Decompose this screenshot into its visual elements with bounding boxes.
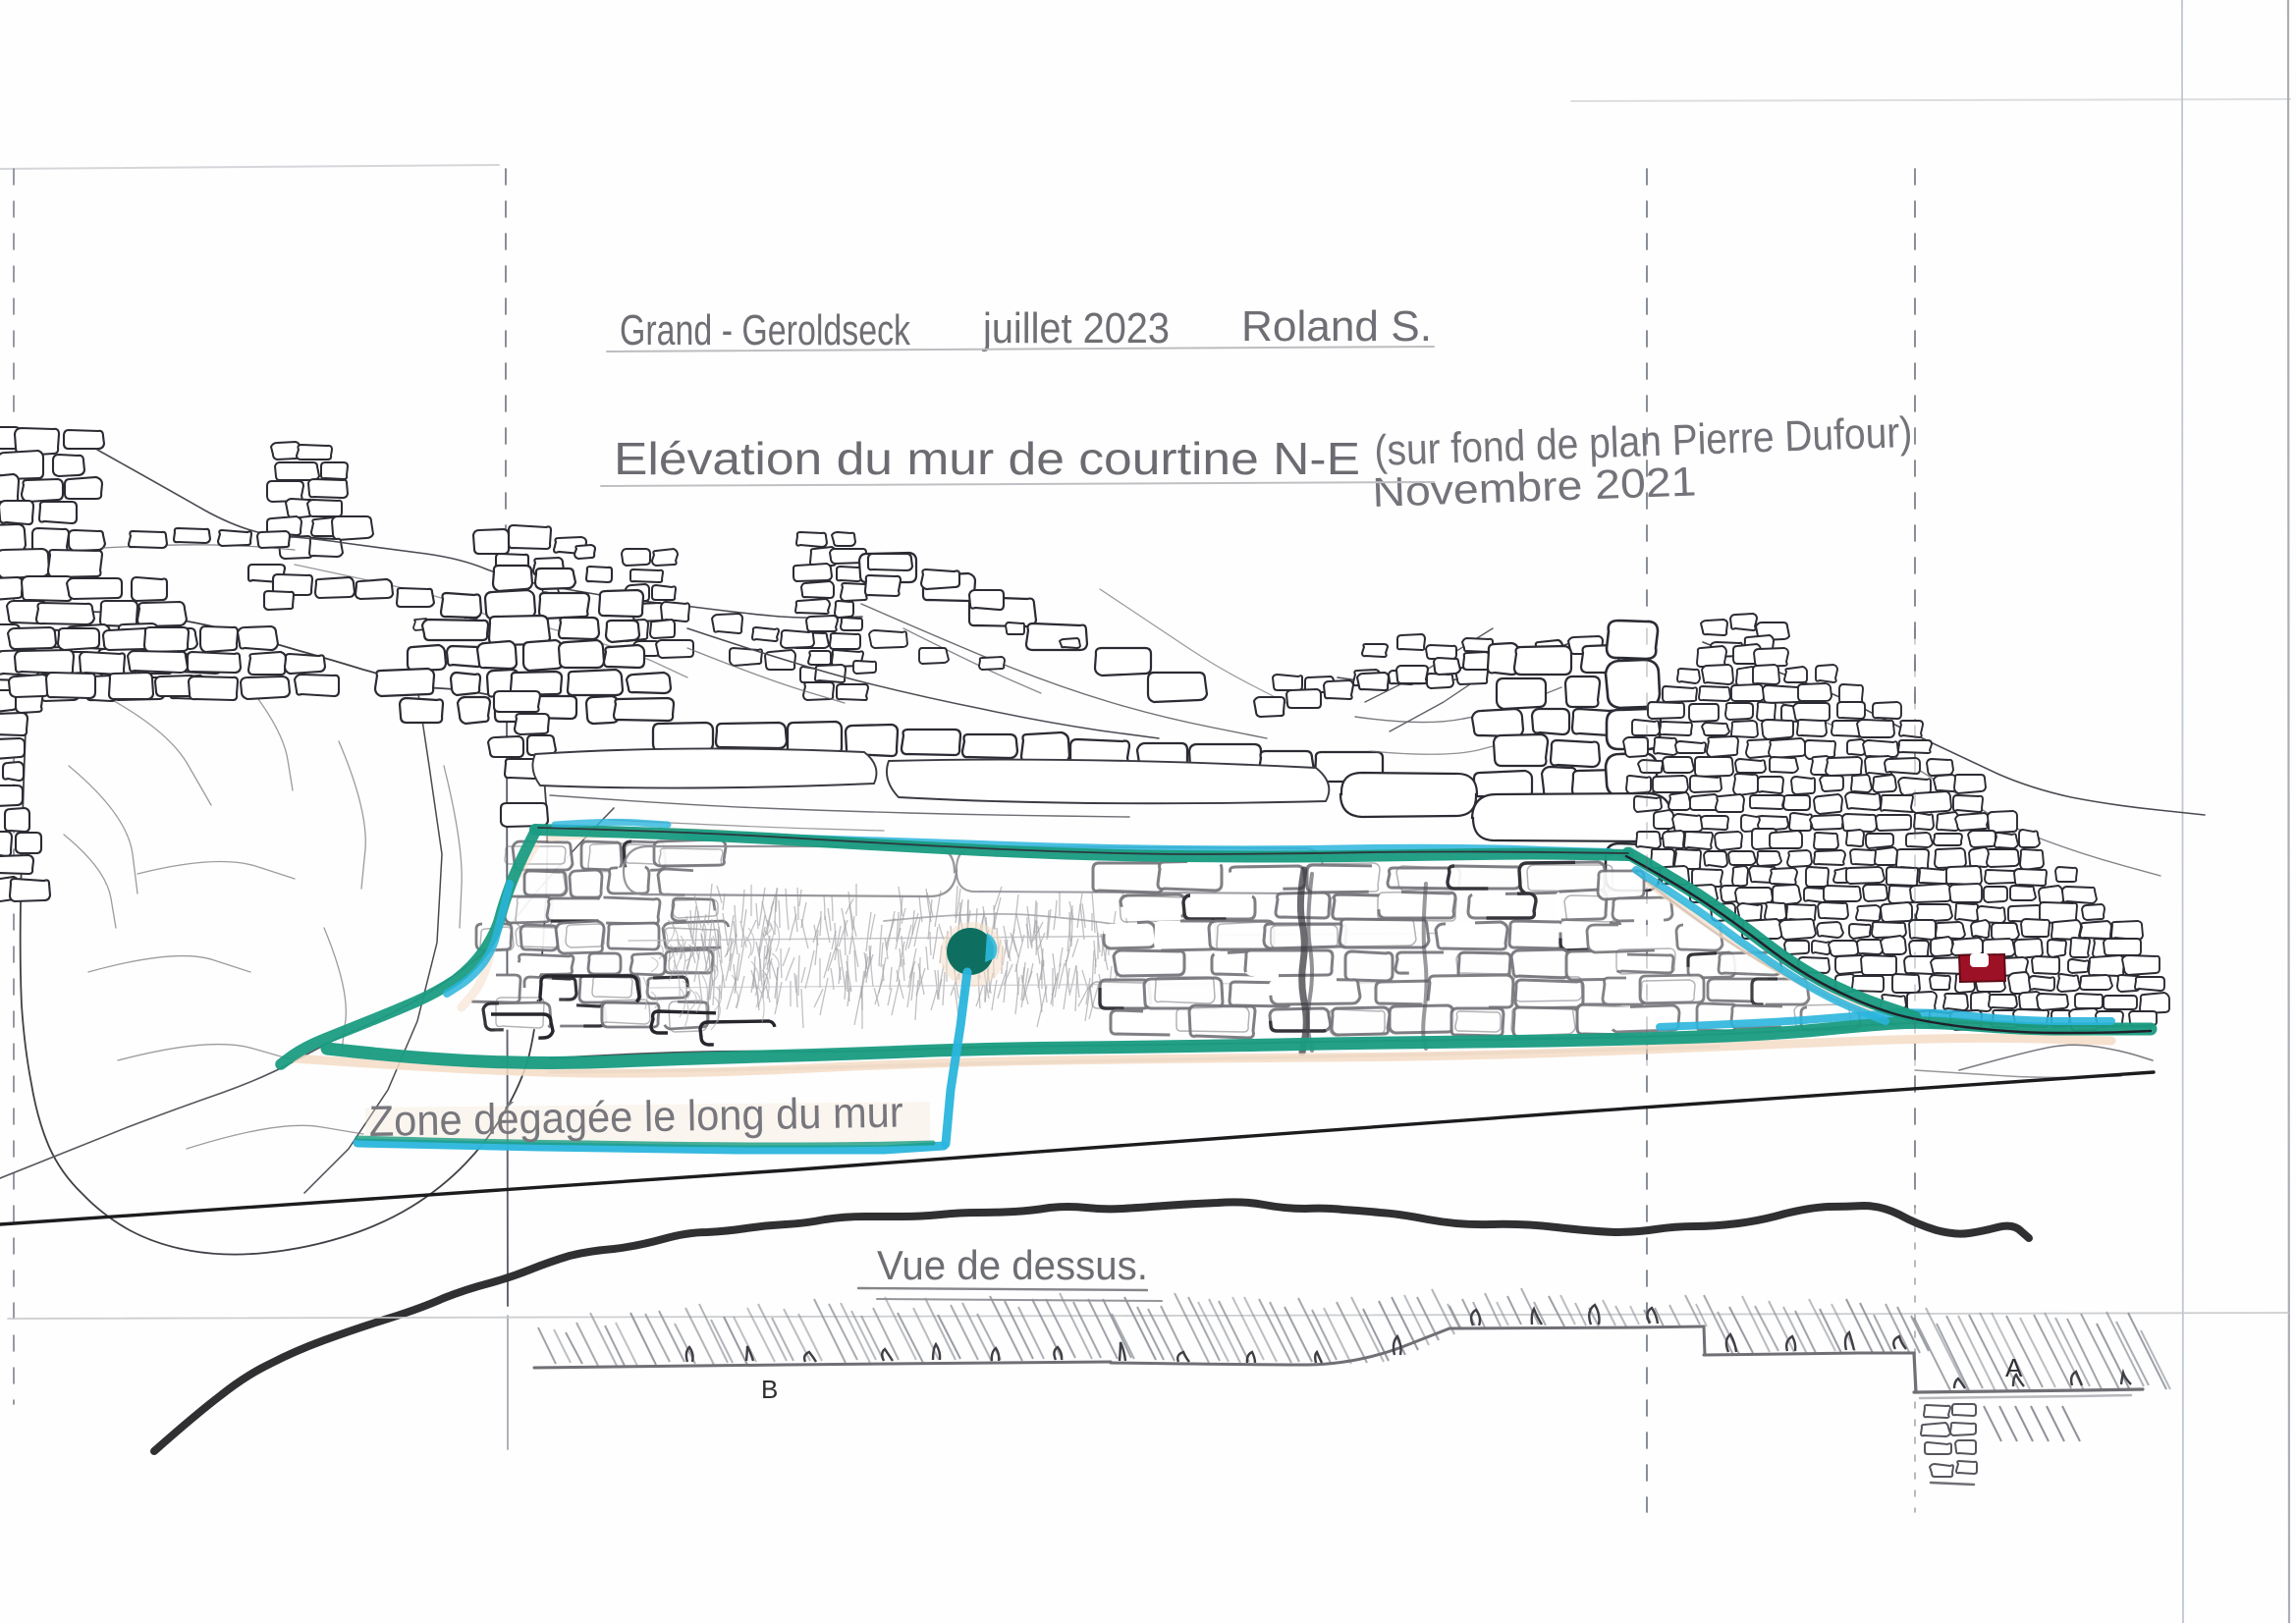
svg-text:Zone dégagée le long du mur: Zone dégagée le long du mur	[368, 1089, 903, 1146]
svg-text:A: A	[2005, 1353, 2023, 1382]
svg-text:Vue de dessus.: Vue de dessus.	[877, 1242, 1148, 1288]
svg-text:juillet 2023: juillet 2023	[981, 304, 1170, 352]
svg-text:B: B	[761, 1375, 778, 1404]
svg-text:Grand - Geroldseck: Grand - Geroldseck	[620, 306, 911, 354]
svg-text:Roland S.: Roland S.	[1241, 302, 1432, 351]
svg-text:Elévation du mur de courtine N: Elévation du mur de courtine N-E	[614, 433, 1360, 484]
